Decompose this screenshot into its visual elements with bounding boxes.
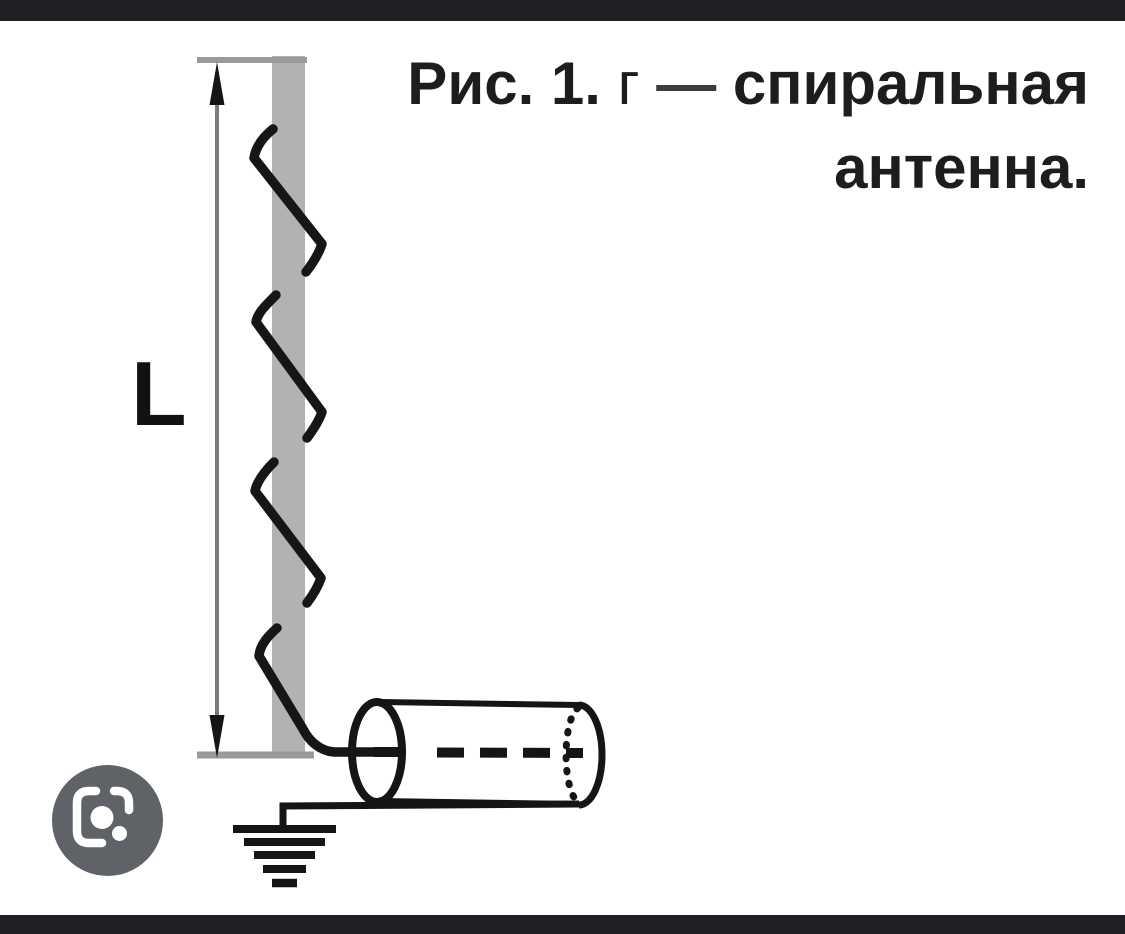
image-viewer-canvas: Рис. 1. г — спиральная антенна. L xyxy=(0,0,1125,934)
coax-center-conductor-dashed xyxy=(437,753,583,754)
ground-symbol xyxy=(233,804,579,883)
caption-item-letter: г xyxy=(618,50,640,117)
google-lens-button[interactable] xyxy=(52,765,163,876)
caption-figure-number: Рис. 1. xyxy=(407,50,601,117)
caption-line-1: Рис. 1. г — спиральная xyxy=(407,42,1089,126)
coax-top-edge xyxy=(377,702,579,705)
antenna-rod xyxy=(272,56,305,756)
ground-wire xyxy=(283,804,579,828)
figure-caption: Рис. 1. г — спиральная антенна. xyxy=(407,42,1089,210)
caption-dash: — xyxy=(656,50,716,117)
dimension-arrow xyxy=(210,62,225,758)
caption-line-2: антенна. xyxy=(407,126,1089,210)
google-lens-icon xyxy=(52,765,163,876)
dimension-label: L xyxy=(131,349,187,440)
caption-term: спиральная xyxy=(733,50,1089,117)
letterbox-bottom-bar xyxy=(0,915,1125,934)
arrowhead-up xyxy=(210,62,225,105)
